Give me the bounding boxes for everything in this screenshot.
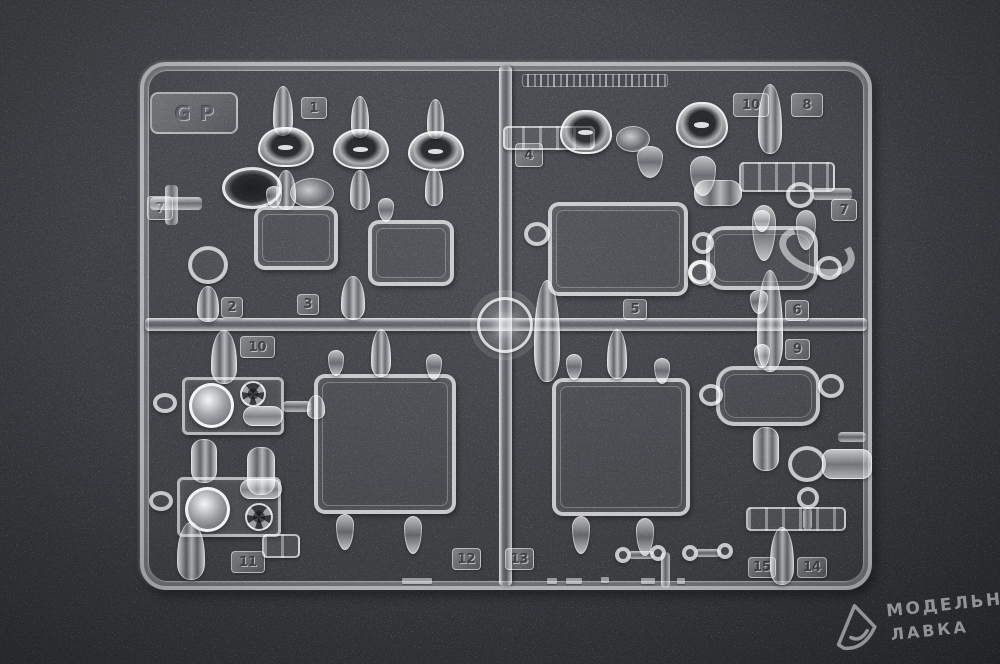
clear-part-dome-lens	[408, 131, 464, 171]
clear-part-headlight-lens	[189, 383, 234, 428]
part-number-tag: 11	[231, 551, 265, 573]
clear-part-window	[368, 220, 454, 286]
mounting-lug	[699, 384, 723, 406]
clear-part-detail-wheel	[240, 381, 266, 407]
part-number-tag: 13	[505, 548, 534, 570]
runner-stub	[838, 432, 866, 442]
mounting-lug	[149, 491, 173, 511]
clear-part-lamp-pill	[243, 406, 283, 426]
part-number-tag: 7	[831, 199, 857, 221]
clear-part-detail-wheel	[245, 503, 273, 531]
part-number-tag: 10	[240, 336, 275, 358]
clear-part-lamp-mount	[822, 449, 872, 479]
runner-stub	[812, 188, 852, 200]
part-number-tag: 9	[785, 339, 810, 360]
runner-stub	[661, 552, 670, 588]
mounting-lug	[816, 256, 842, 280]
clear-part-strip	[262, 534, 300, 558]
clear-part-small-ball	[797, 487, 819, 509]
part-number-tag: 5	[623, 299, 647, 320]
clear-part-window-large	[552, 378, 690, 516]
clear-part-strip	[746, 507, 846, 531]
mold-mark	[547, 578, 557, 584]
sprue-letter-plate: GP	[150, 92, 238, 134]
watermark-pick-logo	[827, 596, 885, 659]
watermark-line1: МОДЕЛЬНАЯ	[885, 586, 1000, 621]
part-number-tag: 12	[452, 548, 481, 570]
clear-part-dome-lens	[333, 129, 389, 169]
mold-mark	[601, 577, 609, 583]
runner-stub	[165, 185, 178, 225]
clear-part-lamp-lens	[786, 182, 814, 208]
clear-part-capsule	[694, 180, 742, 206]
clear-part-small-lens	[290, 178, 334, 208]
clear-part-window-large	[314, 374, 456, 514]
mold-mark	[677, 578, 685, 584]
watermark: МОДЕЛЬНАЯ ЛАВКА	[823, 580, 1000, 664]
clear-part-lamp-pill	[240, 479, 282, 499]
part-number-tag: 6	[785, 300, 809, 321]
clear-part-windshield	[548, 202, 688, 296]
mounting-lug	[818, 374, 844, 398]
part-number-tag: 3	[297, 294, 319, 315]
mounting-lug	[692, 232, 714, 254]
clear-part-round-lens	[188, 246, 228, 284]
clear-part-vision-block	[716, 366, 820, 426]
watermark-line2: ЛАВКА	[890, 617, 970, 644]
clear-part-dome-lens	[258, 127, 314, 167]
mold-mark	[402, 578, 432, 584]
mounting-lug	[153, 393, 177, 413]
injection-gate-hub	[477, 297, 533, 353]
mold-mark	[566, 578, 582, 584]
clear-part-bulb	[197, 286, 219, 322]
clear-part-capsule	[753, 427, 779, 471]
mounting-lug	[524, 222, 550, 246]
part-number-tag: 14	[797, 557, 827, 578]
part-number-tag: 8	[791, 93, 823, 117]
clear-part-dumbbell-ring	[717, 543, 733, 559]
clear-part-dome-lens	[560, 110, 612, 154]
clear-part-lamp-lens	[788, 446, 826, 482]
embossed-mold-text	[522, 74, 668, 87]
mold-mark	[641, 578, 655, 584]
part-number-tag: 1	[301, 97, 327, 119]
mounting-lug	[688, 260, 712, 284]
clear-part-dome-lens	[676, 102, 728, 148]
part-number-tag: 2	[221, 297, 243, 318]
photo-clear-sprue: GP 1 10 8 4 7 7 2 3 10 5 6 9 11 12 13 15…	[0, 0, 1000, 664]
clear-part-window	[254, 206, 338, 270]
